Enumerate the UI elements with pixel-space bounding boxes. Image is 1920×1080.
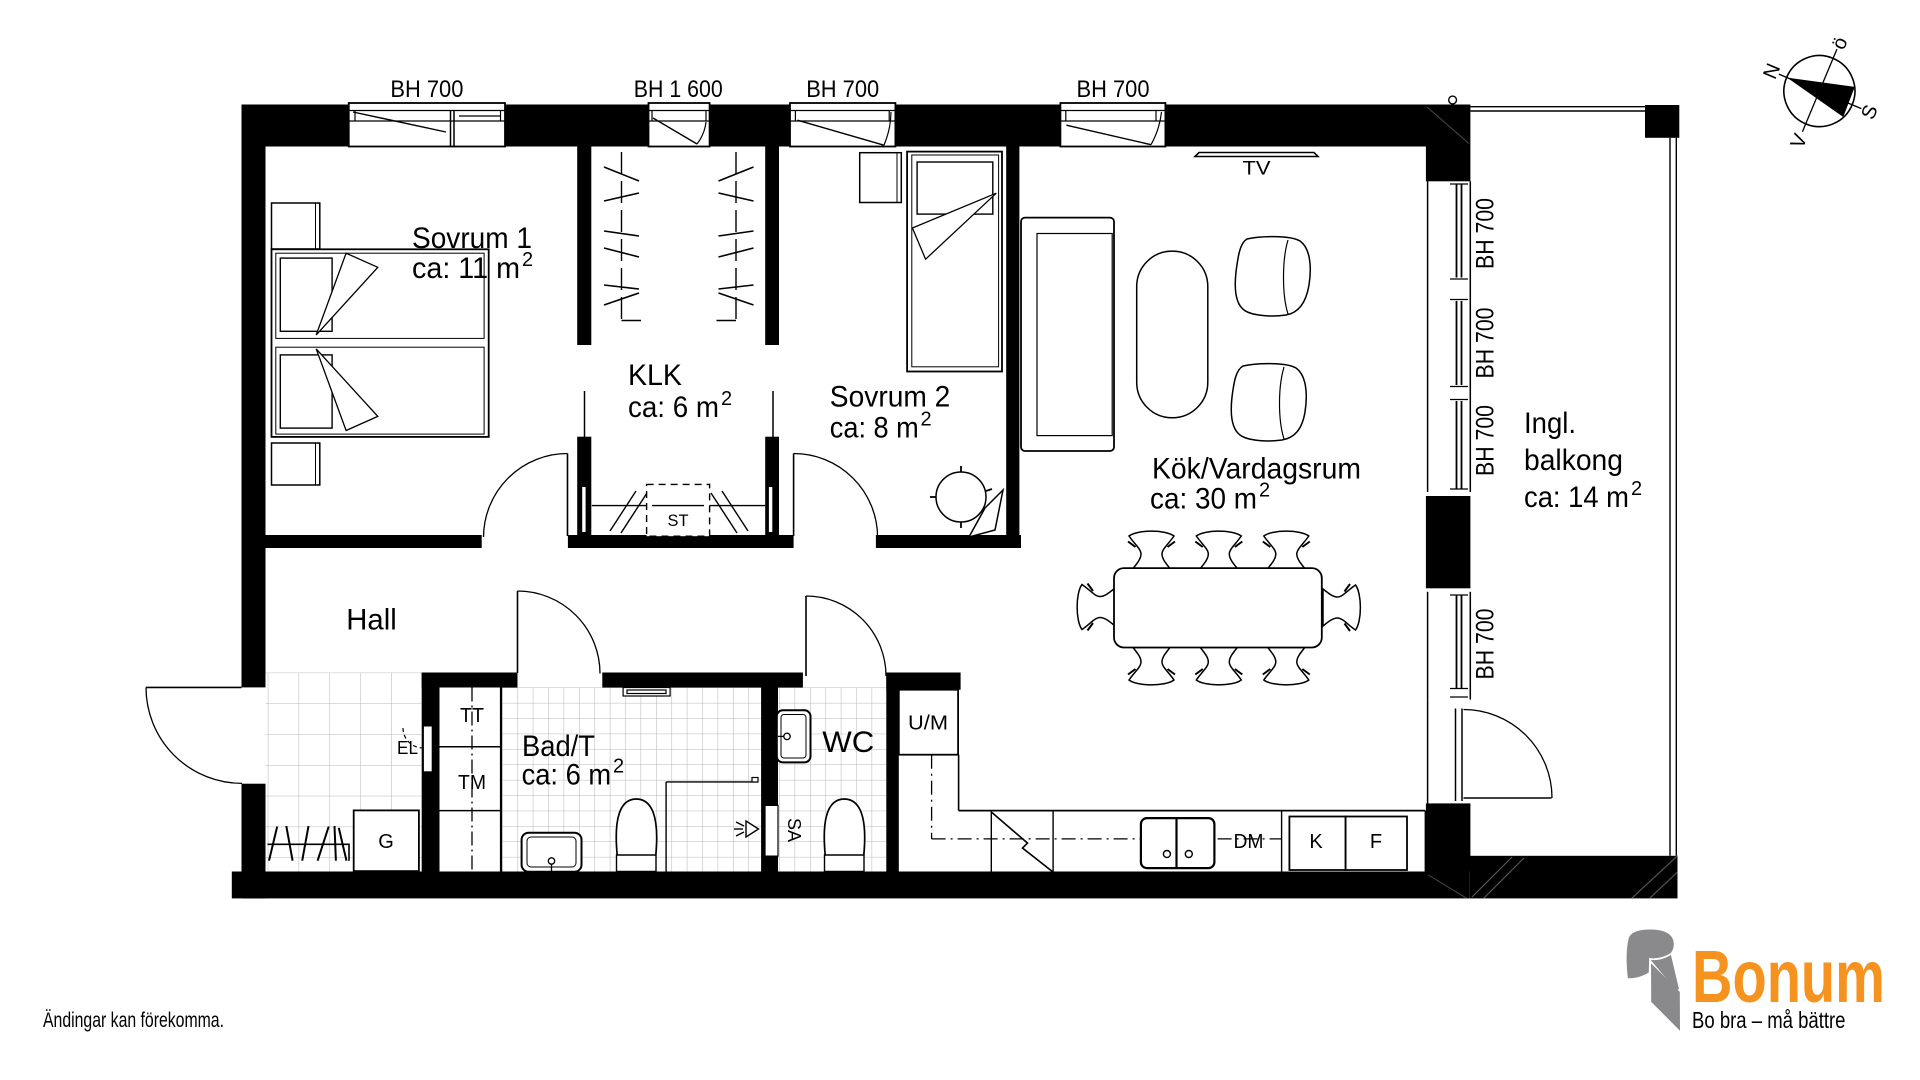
svg-text:balkong: balkong — [1524, 444, 1623, 477]
svg-text:Bo bra – må bättre: Bo bra – må bättre — [1692, 1007, 1846, 1033]
svg-text:Sovrum 1: Sovrum 1 — [412, 222, 532, 255]
svg-text:K: K — [1309, 831, 1323, 853]
svg-text:EL: EL — [397, 738, 418, 758]
svg-text:DM: DM — [1234, 831, 1264, 853]
svg-text:BH 700: BH 700 — [806, 76, 879, 103]
svg-text:Bonum: Bonum — [1692, 935, 1885, 1018]
svg-text:2: 2 — [921, 409, 932, 431]
svg-text:BH 1 600: BH 1 600 — [634, 76, 723, 103]
svg-text:ca: 8 m: ca: 8 m — [830, 412, 919, 445]
svg-text:2: 2 — [1631, 478, 1642, 500]
svg-text:ca: 14 m: ca: 14 m — [1524, 481, 1629, 514]
svg-text:ST: ST — [668, 511, 689, 530]
svg-text:BH 700: BH 700 — [1472, 308, 1500, 379]
svg-text:ca: 6 m: ca: 6 m — [522, 759, 612, 792]
svg-text:BH 700: BH 700 — [1472, 609, 1500, 680]
svg-text:KLK: KLK — [628, 359, 682, 392]
svg-text:Kök/Vardagsrum: Kök/Vardagsrum — [1152, 453, 1361, 486]
svg-text:TV: TV — [1243, 159, 1271, 180]
svg-text:G: G — [378, 831, 394, 853]
svg-text:BH 700: BH 700 — [1077, 76, 1150, 103]
svg-text:U/M: U/M — [908, 713, 948, 735]
svg-text:Hall: Hall — [346, 604, 396, 637]
svg-text:TT: TT — [460, 705, 484, 727]
svg-text:BH 700: BH 700 — [1472, 405, 1500, 476]
svg-text:ca: 11 m: ca: 11 m — [412, 252, 520, 285]
svg-text:F: F — [1370, 831, 1382, 853]
svg-text:2: 2 — [522, 249, 533, 271]
svg-text:ca: 6 m: ca: 6 m — [628, 391, 719, 424]
svg-text:Sovrum 2: Sovrum 2 — [830, 381, 951, 414]
svg-text:BH 700: BH 700 — [1472, 198, 1500, 269]
svg-text:TM: TM — [458, 772, 486, 794]
svg-text:Ändingar kan förekomma.: Ändingar kan förekomma. — [43, 1009, 224, 1032]
svg-text:ca: 30 m: ca: 30 m — [1150, 483, 1257, 516]
svg-text:2: 2 — [613, 756, 624, 778]
svg-text:SA: SA — [784, 818, 804, 842]
svg-text:2: 2 — [1259, 480, 1270, 502]
svg-text:WC: WC — [822, 726, 874, 759]
svg-text:BH 700: BH 700 — [390, 76, 463, 103]
svg-text:2: 2 — [721, 388, 732, 410]
svg-text:Ingl.: Ingl. — [1524, 407, 1576, 440]
